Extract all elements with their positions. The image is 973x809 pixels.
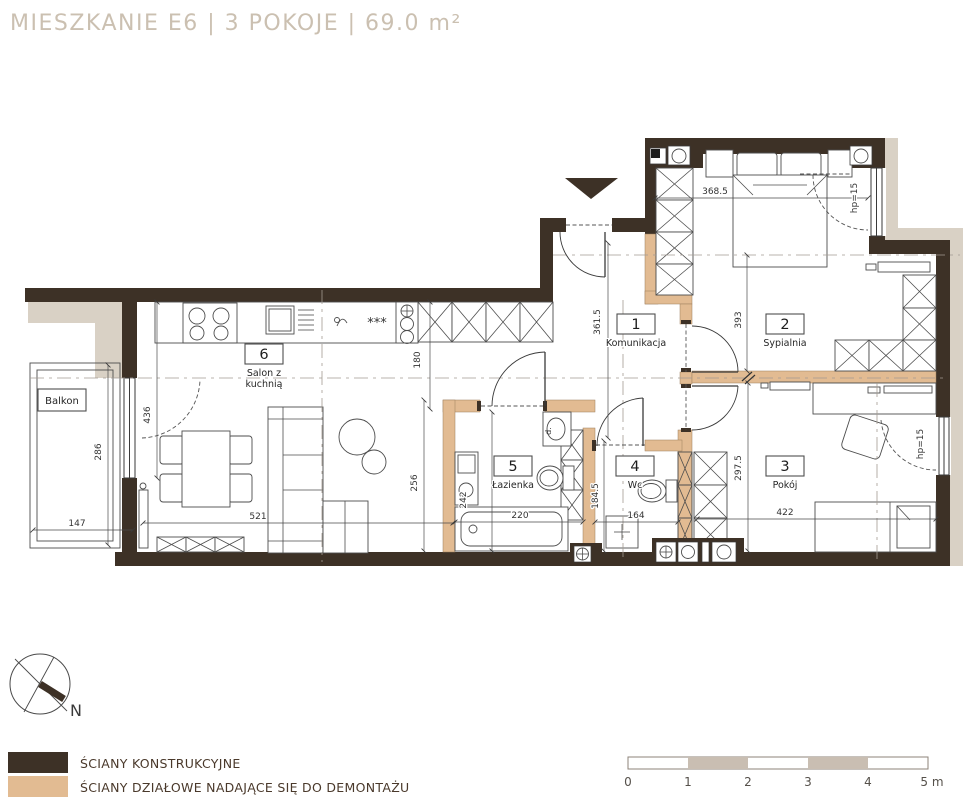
dim-wc-h: 184.5 <box>591 483 601 509</box>
sofa-icon <box>268 407 368 553</box>
dim-aneks: 180 <box>413 351 423 368</box>
dim-parapet-2: hp=15 <box>916 429 926 459</box>
room-label-komunikacja: 1 Komunikacja <box>606 314 666 349</box>
dim-salon-w: 521 <box>249 512 266 522</box>
scale-tick-1: 1 <box>684 775 692 789</box>
side-table-icon <box>362 450 386 474</box>
bedroom-radiator-icon <box>866 262 930 272</box>
meter-box-icon <box>570 543 602 565</box>
floor-plan-drawing: MIESZKANIE E6 | 3 POKOJE | 69.0 m² <box>0 0 973 809</box>
meter-box-icon <box>652 538 744 565</box>
wc-toilet-icon <box>638 480 677 502</box>
balcony-label: Balkon <box>45 396 79 407</box>
dim-komunikacja-l: 361.5 <box>593 309 603 335</box>
salon-furniture <box>139 407 386 553</box>
bedroom-wardrobe-icon <box>656 168 693 295</box>
balcony-door-window <box>121 378 138 478</box>
single-bed-icon <box>815 502 936 552</box>
desk-chair-icon <box>840 414 889 461</box>
dining-table-icon <box>160 431 252 507</box>
bedroom-door <box>686 324 738 372</box>
scale-tick-0: 0 <box>624 775 632 789</box>
room3-radiator-icon <box>761 382 810 390</box>
nightstand-icon <box>706 150 733 177</box>
svg-text:Komunikacja: Komunikacja <box>606 338 666 349</box>
room3-window-swing <box>881 420 936 470</box>
nightstand-icon <box>828 150 852 177</box>
entrance-door <box>560 225 612 277</box>
salon-radiator-icon <box>139 483 148 548</box>
dim-lazienka-h: 242 <box>459 491 469 508</box>
dim-balkon-h: 286 <box>94 443 104 460</box>
svg-text:3: 3 <box>780 459 789 475</box>
dim-sypialnia-w: 368.5 <box>702 187 728 197</box>
scale-bar: 0 1 2 3 4 5 m <box>624 757 943 789</box>
room-label-sypialnia: 2 Sypialnia <box>763 314 806 349</box>
scale-tick-3: 3 <box>804 775 812 789</box>
page-title: MIESZKANIE E6 | 3 POKOJE | 69.0 m² <box>10 11 462 36</box>
room-label-lazienka: 5 Łazienka <box>491 456 534 491</box>
double-bed-icon <box>733 153 827 267</box>
room3-door <box>686 384 738 430</box>
dim-balkon-w: 147 <box>68 519 85 529</box>
dim-salon-r: 256 <box>410 474 420 491</box>
svg-text:Łazienka: Łazienka <box>491 480 534 491</box>
legend-label-partition: ŚCIANY DZIAŁOWE NADAJĄCE SIĘ DO DEMONTAŻ… <box>80 780 410 795</box>
kitchen-counter: *** <box>155 302 418 344</box>
dim-parapet-1: hp=15 <box>850 183 860 213</box>
room-label-salon: 6 Salon z kuchnią <box>245 344 283 390</box>
svg-text:1: 1 <box>631 317 640 333</box>
room3-wardrobe-icon <box>694 452 727 551</box>
room-label-pokoj: 3 Pokój <box>766 456 804 491</box>
legend-label-structural: ŚCIANY KONSTRUKCYJNE <box>80 756 241 771</box>
electric-box-icon <box>651 149 660 158</box>
svg-text:kuchnią: kuchnią <box>246 379 283 390</box>
hall-wardrobe-icon <box>418 302 553 342</box>
salon-sideboard-icon <box>157 537 244 552</box>
dim-lazienka-w: 220 <box>511 511 528 521</box>
svg-text:4: 4 <box>630 459 639 475</box>
compass-north-label: N <box>70 701 82 720</box>
legend: ŚCIANY KONSTRUKCYJNE ŚCIANY DZIAŁOWE NAD… <box>8 752 410 797</box>
legend-swatch-partition <box>8 776 68 797</box>
dim-pokoj-h: 297.5 <box>734 455 744 481</box>
legend-swatch-structural <box>8 752 68 773</box>
compass-needle-icon <box>40 684 64 699</box>
dim-pokoj-w: 422 <box>776 508 793 518</box>
dim-salon-l: 436 <box>143 406 153 423</box>
freezer-symbol: *** <box>367 316 387 331</box>
scale-tick-2: 2 <box>744 775 752 789</box>
wc-door <box>596 398 645 446</box>
scale-unit: 5 m <box>920 775 943 789</box>
scale-tick-4: 4 <box>864 775 872 789</box>
entrance-arrow-icon <box>565 178 618 199</box>
bedroom-corner-wardrobe-icon <box>835 275 936 371</box>
svg-text:6: 6 <box>259 347 268 363</box>
bath-mark: d. <box>544 427 553 435</box>
svg-text:5: 5 <box>508 459 517 475</box>
compass: N <box>10 654 82 720</box>
room3-window <box>936 417 951 475</box>
coffee-table-icon <box>339 419 375 455</box>
desk-icon <box>813 383 936 414</box>
dim-wc-w: 164 <box>627 511 644 521</box>
svg-text:Pokój: Pokój <box>773 480 798 491</box>
bathroom-door <box>481 352 545 406</box>
bedroom-window <box>868 168 886 236</box>
svg-text:Salon z: Salon z <box>247 368 281 379</box>
bath-toilet-icon <box>537 466 574 490</box>
svg-text:2: 2 <box>780 317 789 333</box>
svg-text:Wc: Wc <box>628 480 643 491</box>
fridge-icon <box>396 302 418 344</box>
floor-plan-page: MIESZKANIE E6 | 3 POKOJE | 69.0 m² <box>0 0 973 809</box>
dim-sypialnia-h: 393 <box>734 311 744 328</box>
svg-text:Sypialnia: Sypialnia <box>763 338 806 349</box>
